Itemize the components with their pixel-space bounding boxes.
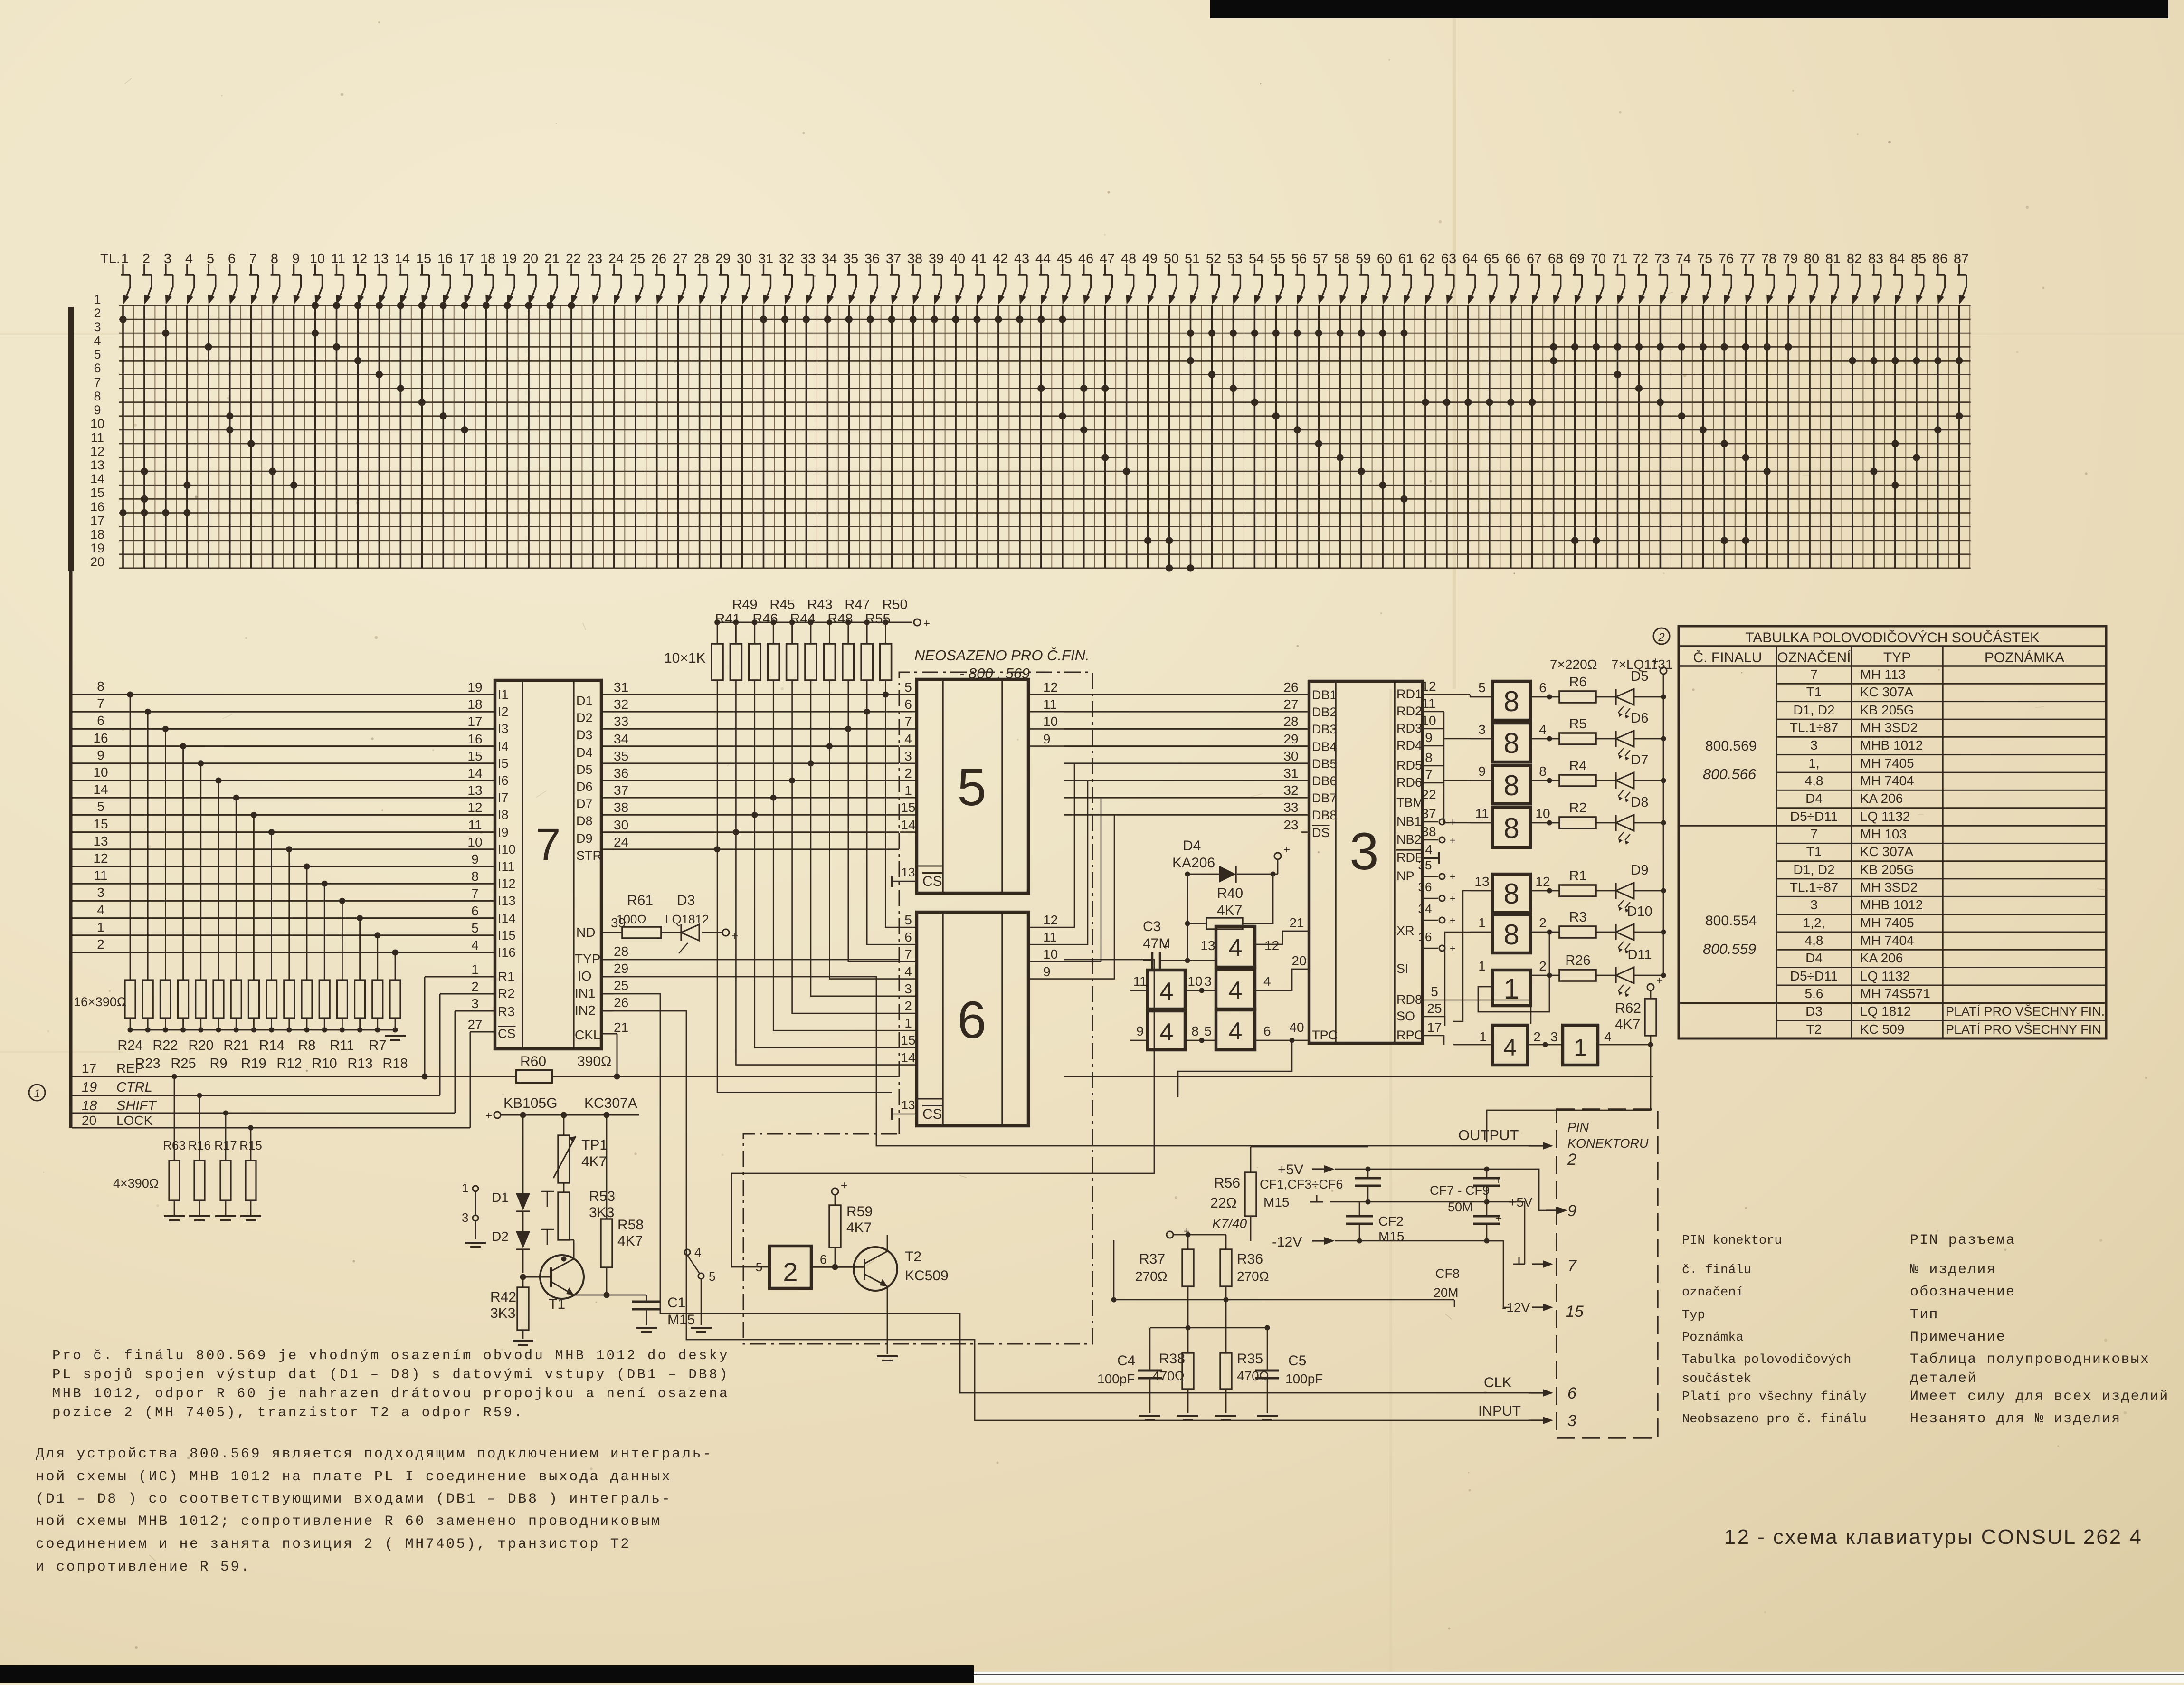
svg-text:3: 3 [94, 320, 101, 334]
svg-text:19: 19 [467, 680, 482, 695]
svg-text:24: 24 [608, 251, 624, 267]
svg-text:4: 4 [1425, 842, 1433, 857]
svg-text:31: 31 [614, 680, 628, 695]
svg-text:13: 13 [902, 865, 915, 879]
svg-text:D1: D1 [492, 1190, 509, 1205]
svg-text:9: 9 [1043, 964, 1051, 979]
svg-text:R60: R60 [520, 1054, 546, 1069]
svg-text:D5: D5 [576, 762, 593, 777]
svg-text:4: 4 [1503, 1034, 1517, 1061]
svg-text:8: 8 [1503, 727, 1519, 759]
svg-text:33: 33 [614, 714, 628, 729]
svg-text:3: 3 [1478, 722, 1486, 737]
svg-text:11: 11 [94, 868, 107, 883]
svg-text:55: 55 [1270, 251, 1285, 267]
svg-text:ной схемы МНВ 1012; сопротивле: ной схемы МНВ 1012; сопротивление R 60 з… [36, 1514, 662, 1530]
svg-text:60: 60 [1377, 251, 1392, 267]
svg-text:MH 7404: MH 7404 [1860, 773, 1914, 788]
svg-text:3: 3 [1810, 738, 1818, 752]
svg-text:R61: R61 [627, 893, 653, 908]
svg-text:R8: R8 [298, 1038, 315, 1053]
svg-text:10: 10 [1421, 713, 1436, 728]
svg-text:I3: I3 [498, 722, 509, 736]
svg-text:86: 86 [1932, 251, 1947, 267]
svg-text:D10: D10 [1627, 904, 1652, 919]
svg-text:12: 12 [1043, 913, 1058, 927]
svg-text:10: 10 [310, 251, 325, 267]
svg-text:R20: R20 [188, 1038, 213, 1053]
svg-text:36: 36 [614, 766, 628, 781]
svg-text:D9: D9 [576, 831, 593, 846]
svg-text:4: 4 [1229, 977, 1243, 1004]
svg-text:11: 11 [331, 251, 345, 267]
svg-text:10: 10 [93, 765, 108, 780]
svg-text:+: + [1495, 1174, 1502, 1187]
svg-text:18: 18 [480, 251, 495, 267]
svg-text:21: 21 [544, 251, 560, 267]
svg-text:+: + [1163, 941, 1169, 952]
svg-text:MH 7405: MH 7405 [1860, 756, 1914, 771]
svg-text:13: 13 [93, 834, 108, 848]
svg-text:NB1: NB1 [1396, 814, 1422, 828]
svg-text:CF8: CF8 [1435, 1266, 1460, 1281]
svg-text:+: + [485, 1109, 492, 1122]
svg-text:270Ω: 270Ω [1135, 1269, 1168, 1284]
svg-text:TP1: TP1 [581, 1137, 608, 1153]
svg-text:R56: R56 [1214, 1175, 1240, 1191]
svg-text:6: 6 [1263, 1024, 1271, 1038]
svg-text:11: 11 [1043, 930, 1057, 944]
svg-text:+: + [1652, 655, 1659, 668]
svg-text:14: 14 [901, 818, 915, 832]
svg-text:7: 7 [94, 375, 101, 390]
svg-text:28: 28 [694, 251, 709, 267]
svg-text:6: 6 [820, 1252, 826, 1266]
svg-text:LQ 1132: LQ 1132 [1860, 969, 1910, 983]
svg-text:R9: R9 [209, 1056, 227, 1071]
svg-text:+: + [1450, 893, 1456, 904]
svg-text:I10: I10 [498, 842, 516, 857]
svg-text:800.569: 800.569 [1705, 738, 1757, 754]
svg-text:I7: I7 [498, 790, 509, 805]
svg-text:8: 8 [1191, 1024, 1199, 1038]
svg-text:11: 11 [468, 818, 482, 832]
svg-text:2: 2 [904, 766, 912, 781]
svg-text:1: 1 [462, 1181, 468, 1195]
svg-text:34: 34 [822, 251, 837, 267]
svg-text:18: 18 [90, 527, 104, 542]
svg-text:16×390Ω: 16×390Ω [74, 995, 126, 1009]
svg-text:12: 12 [1264, 938, 1279, 953]
svg-text:16: 16 [437, 251, 453, 267]
svg-text:65: 65 [1484, 251, 1499, 267]
svg-text:100pF: 100pF [1097, 1371, 1135, 1386]
svg-text:1,: 1, [1808, 756, 1819, 771]
svg-text:7: 7 [97, 696, 104, 711]
svg-text:4K7: 4K7 [617, 1233, 643, 1249]
svg-text:I15: I15 [498, 928, 516, 942]
svg-text:67: 67 [1527, 251, 1542, 267]
svg-text:PLATÍ PRO VŠECHNY FIN: PLATÍ PRO VŠECHNY FIN [1946, 1022, 2101, 1037]
svg-text:R50: R50 [882, 597, 907, 612]
svg-text:58: 58 [1334, 251, 1349, 267]
svg-text:ND: ND [576, 925, 595, 940]
svg-text:KONEKTORU: KONEKTORU [1567, 1136, 1649, 1151]
svg-text:11: 11 [91, 430, 104, 445]
svg-text:D5÷D11: D5÷D11 [1790, 809, 1838, 824]
svg-text:2: 2 [471, 979, 479, 994]
svg-text:1: 1 [97, 920, 104, 934]
svg-text:KC307A: KC307A [584, 1095, 637, 1111]
svg-text:270Ω: 270Ω [1237, 1269, 1269, 1284]
svg-text:RD2: RD2 [1396, 704, 1422, 718]
svg-text:12: 12 [90, 444, 104, 458]
svg-text:59: 59 [1356, 251, 1371, 267]
svg-text:6: 6 [471, 904, 479, 918]
svg-text:2: 2 [1658, 631, 1664, 644]
svg-text:30: 30 [737, 251, 752, 267]
svg-text:R17: R17 [214, 1138, 237, 1152]
svg-text:I12: I12 [498, 876, 516, 891]
svg-text:C3: C3 [1143, 919, 1161, 934]
svg-text:R26: R26 [1565, 953, 1590, 968]
svg-text:LQ 1132: LQ 1132 [1860, 809, 1910, 824]
svg-text:I2: I2 [498, 704, 509, 719]
svg-text:D1: D1 [576, 694, 593, 708]
svg-text:48: 48 [1121, 251, 1136, 267]
svg-text:Č. FINALU: Č. FINALU [1693, 649, 1762, 666]
svg-text:PIN konektoru: PIN konektoru [1682, 1234, 1782, 1248]
svg-text:OZNAČENÍ: OZNAČENÍ [1777, 649, 1851, 666]
svg-text:13: 13 [373, 251, 389, 267]
svg-text:61: 61 [1398, 251, 1414, 267]
svg-text:TL.: TL. [100, 251, 120, 267]
svg-text:37: 37 [614, 783, 628, 798]
svg-text:RD4: RD4 [1396, 738, 1422, 752]
svg-text:50M: 50M [1448, 1200, 1473, 1214]
svg-text:R2: R2 [498, 986, 515, 1001]
svg-text:R19: R19 [241, 1056, 266, 1071]
svg-text:2: 2 [1567, 1151, 1576, 1169]
svg-text:50: 50 [1164, 251, 1179, 267]
svg-text:77: 77 [1740, 251, 1755, 267]
svg-text:26: 26 [1283, 680, 1298, 695]
svg-text:43: 43 [1014, 251, 1029, 267]
svg-text:PIN: PIN [1567, 1120, 1589, 1134]
svg-text:KB 205G: KB 205G [1860, 703, 1914, 717]
svg-text:R48: R48 [827, 611, 853, 627]
svg-text:6: 6 [1567, 1384, 1576, 1402]
svg-text:4K7: 4K7 [1217, 903, 1242, 918]
svg-text:8: 8 [1503, 878, 1519, 910]
svg-text:3: 3 [1204, 974, 1212, 989]
svg-text:KA 206: KA 206 [1860, 951, 1903, 965]
svg-text:36: 36 [1418, 880, 1432, 894]
svg-text:R10: R10 [312, 1056, 337, 1071]
svg-text:68: 68 [1548, 251, 1563, 267]
svg-text:D8: D8 [1631, 795, 1648, 810]
svg-text:15: 15 [416, 251, 431, 267]
svg-text:R41: R41 [715, 611, 740, 627]
svg-text:R36: R36 [1237, 1251, 1263, 1267]
svg-text:1,2,: 1,2, [1803, 915, 1825, 930]
svg-text:D3: D3 [677, 893, 695, 908]
svg-text:DB1: DB1 [1312, 688, 1337, 702]
svg-text:10: 10 [1535, 806, 1550, 821]
svg-text:D1, D2: D1, D2 [1793, 703, 1834, 717]
svg-text:I9: I9 [498, 825, 509, 839]
svg-text:M15: M15 [1263, 1195, 1289, 1209]
svg-text:11: 11 [1475, 806, 1489, 821]
svg-text:и сопротивление R 59.: и сопротивление R 59. [36, 1559, 251, 1575]
svg-text:14: 14 [901, 1050, 915, 1065]
svg-text:+: + [1450, 914, 1456, 926]
svg-text:17: 17 [1427, 1020, 1442, 1035]
svg-text:6: 6 [904, 697, 912, 712]
svg-text:9: 9 [1136, 1024, 1144, 1038]
svg-text:pozice 2 (MH 7405), tranzistor: pozice 2 (MH 7405), tranzistor T2 a odpo… [52, 1405, 524, 1420]
svg-text:RD3: RD3 [1396, 721, 1422, 735]
svg-text:M15: M15 [1378, 1229, 1404, 1244]
svg-text:10: 10 [1043, 714, 1058, 729]
svg-text:80: 80 [1804, 251, 1819, 267]
svg-text:4: 4 [1229, 1018, 1243, 1045]
svg-text:10: 10 [1043, 947, 1058, 961]
svg-text:R63: R63 [163, 1138, 186, 1152]
svg-text:RD8: RD8 [1396, 992, 1422, 1007]
svg-text:R47: R47 [845, 597, 870, 612]
svg-text:T2: T2 [905, 1249, 921, 1265]
svg-text:Примечание: Примечание [1910, 1329, 2006, 1345]
svg-text:84: 84 [1890, 251, 1905, 267]
svg-text:R11: R11 [330, 1038, 354, 1053]
svg-text:11: 11 [1422, 696, 1435, 711]
svg-text:49: 49 [1142, 251, 1158, 267]
svg-text:R14: R14 [259, 1038, 284, 1053]
svg-text:12 - схема клавиатуры CONSUL 2: 12 - схема клавиатуры CONSUL 262 4 [1724, 1525, 2143, 1549]
svg-text:30: 30 [1283, 749, 1298, 763]
svg-text:75: 75 [1697, 251, 1712, 267]
svg-text:+: + [1450, 816, 1456, 828]
svg-text:R4: R4 [1569, 758, 1586, 773]
svg-text:37: 37 [886, 251, 901, 267]
svg-text:8: 8 [94, 389, 101, 403]
svg-text:11: 11 [1133, 974, 1147, 989]
svg-text:DB3: DB3 [1312, 722, 1337, 736]
svg-text:2: 2 [1539, 915, 1547, 930]
svg-text:76: 76 [1719, 251, 1734, 267]
svg-text:R49: R49 [732, 597, 757, 612]
svg-text:22: 22 [1421, 787, 1436, 802]
svg-text:CS: CS [922, 874, 942, 889]
svg-text:SHIFT: SHIFT [116, 1098, 157, 1114]
svg-text:D4: D4 [576, 745, 593, 760]
svg-text:R45: R45 [769, 597, 795, 612]
svg-text:6: 6 [94, 361, 101, 375]
svg-text:D1, D2: D1, D2 [1793, 862, 1834, 877]
svg-text:20: 20 [90, 555, 104, 569]
svg-text:9: 9 [97, 748, 104, 762]
svg-text:4: 4 [1160, 978, 1174, 1005]
svg-text:14: 14 [90, 472, 104, 486]
svg-text:72: 72 [1633, 251, 1648, 267]
svg-text:4,8: 4,8 [1805, 933, 1823, 948]
svg-text:LQ 1812: LQ 1812 [1860, 1004, 1911, 1019]
svg-text:R40: R40 [1217, 885, 1243, 901]
svg-text:53: 53 [1227, 251, 1243, 267]
svg-text:R44: R44 [790, 611, 815, 627]
svg-text:4: 4 [1263, 974, 1271, 989]
svg-text:17: 17 [459, 251, 474, 267]
svg-text:2: 2 [904, 999, 912, 1013]
svg-text:ной схемы (ИС) МНВ 1012 на пла: ной схемы (ИС) МНВ 1012 на плате PL I со… [36, 1469, 672, 1485]
svg-text:MHB 1012: MHB 1012 [1860, 897, 1923, 912]
svg-text:7: 7 [1567, 1257, 1577, 1275]
svg-text:R6: R6 [1569, 675, 1586, 690]
svg-text:26: 26 [651, 251, 666, 267]
svg-text:5: 5 [1478, 680, 1486, 695]
svg-text:78: 78 [1761, 251, 1776, 267]
svg-text:TL.1÷87: TL.1÷87 [1790, 880, 1839, 895]
svg-text:73: 73 [1654, 251, 1670, 267]
svg-text:4: 4 [1160, 1019, 1174, 1046]
svg-text:13: 13 [90, 458, 104, 472]
svg-text:R62: R62 [1615, 1000, 1641, 1016]
svg-text:8: 8 [1503, 685, 1519, 717]
svg-text:I4: I4 [498, 739, 509, 753]
svg-text:20M: 20M [1434, 1285, 1459, 1300]
svg-text:800.559: 800.559 [1703, 941, 1756, 957]
svg-text:KC 307A: KC 307A [1860, 685, 1913, 699]
svg-text:R13: R13 [347, 1056, 372, 1071]
svg-text:1: 1 [904, 783, 912, 798]
svg-text:12: 12 [93, 851, 108, 866]
svg-text:7: 7 [536, 819, 561, 870]
svg-text:Тип: Тип [1910, 1307, 1939, 1323]
svg-text:9: 9 [471, 852, 479, 866]
svg-text:23: 23 [587, 251, 602, 267]
svg-text:15: 15 [901, 1033, 915, 1047]
svg-text:Таблица полупроводниковых: Таблица полупроводниковых [1910, 1352, 2150, 1368]
svg-text:XR: XR [1396, 923, 1415, 938]
svg-text:TYP: TYP [1883, 650, 1911, 666]
svg-text:29: 29 [715, 251, 731, 267]
svg-text:R3: R3 [498, 1004, 515, 1019]
svg-text:9: 9 [1567, 1202, 1576, 1220]
svg-text:STR: STR [576, 848, 602, 863]
svg-text:R16: R16 [188, 1138, 211, 1152]
svg-text:CLK: CLK [1484, 1375, 1511, 1390]
svg-text:R7: R7 [369, 1038, 386, 1053]
svg-text:45: 45 [1057, 251, 1072, 267]
svg-text:9: 9 [1478, 764, 1486, 779]
svg-text:I14: I14 [498, 911, 516, 925]
svg-text:D11: D11 [1627, 947, 1652, 962]
svg-text:4: 4 [1604, 1029, 1612, 1044]
svg-text:16: 16 [93, 731, 108, 745]
svg-text:2: 2 [94, 306, 101, 320]
svg-text:17: 17 [82, 1061, 96, 1076]
svg-text:1: 1 [1574, 1034, 1587, 1061]
svg-text:12: 12 [1421, 679, 1436, 694]
svg-text:R38: R38 [1159, 1351, 1185, 1367]
svg-text:7: 7 [904, 714, 912, 729]
svg-text:25: 25 [1427, 1001, 1442, 1016]
svg-text:52: 52 [1206, 251, 1221, 267]
svg-text:7: 7 [1425, 767, 1433, 782]
svg-text:28: 28 [1283, 714, 1298, 729]
svg-text:Poznámka: Poznámka [1682, 1331, 1744, 1345]
svg-text:D4: D4 [1183, 838, 1201, 854]
svg-text:KA 206: KA 206 [1860, 791, 1903, 806]
svg-text:C4: C4 [1117, 1353, 1135, 1369]
svg-text:Имеет силу для всех изделий: Имеет силу для всех изделий [1910, 1389, 2169, 1405]
svg-text:3: 3 [97, 885, 104, 900]
svg-text:+: + [1450, 871, 1456, 883]
svg-text:SI: SI [1396, 961, 1409, 976]
svg-text:13: 13 [1200, 938, 1215, 953]
svg-text:3K3: 3K3 [589, 1205, 614, 1220]
svg-text:27: 27 [673, 251, 688, 267]
svg-text:4: 4 [471, 938, 479, 952]
svg-text:C1: C1 [667, 1295, 685, 1311]
svg-text:8: 8 [1503, 812, 1519, 844]
svg-text:62: 62 [1420, 251, 1435, 267]
svg-text:R35: R35 [1237, 1351, 1263, 1367]
svg-text:I8: I8 [498, 808, 509, 822]
svg-text:R42: R42 [490, 1289, 516, 1305]
svg-text:2: 2 [97, 937, 104, 952]
svg-text:4: 4 [94, 333, 101, 348]
svg-text:R58: R58 [617, 1217, 644, 1233]
svg-text:3: 3 [1550, 1029, 1558, 1044]
svg-text:20: 20 [523, 251, 538, 267]
svg-text:56: 56 [1291, 251, 1307, 267]
svg-text:DB7: DB7 [1312, 791, 1337, 805]
svg-text:C5: C5 [1288, 1353, 1306, 1369]
svg-text:D3: D3 [576, 728, 593, 742]
svg-text:51: 51 [1185, 251, 1200, 267]
svg-text:15: 15 [90, 486, 104, 500]
svg-text:10: 10 [90, 417, 104, 431]
svg-text:38: 38 [907, 251, 922, 267]
svg-text:3: 3 [904, 981, 912, 996]
svg-text:27: 27 [1283, 697, 1298, 712]
svg-text:6: 6 [97, 713, 104, 728]
svg-text:10: 10 [467, 835, 482, 849]
svg-text:100Ω: 100Ω [617, 912, 646, 926]
svg-text:25: 25 [630, 251, 645, 267]
svg-text:3: 3 [1567, 1412, 1576, 1430]
svg-text:13: 13 [902, 1098, 915, 1112]
svg-text:8: 8 [1425, 750, 1433, 765]
svg-text:19: 19 [90, 541, 104, 555]
svg-text:26: 26 [614, 995, 628, 1010]
svg-text:TYP: TYP [575, 952, 600, 966]
svg-text:14: 14 [467, 766, 482, 781]
svg-text:5: 5 [756, 1260, 762, 1274]
svg-text:35: 35 [843, 251, 858, 267]
svg-text:8: 8 [1503, 770, 1519, 801]
svg-text:15: 15 [93, 817, 108, 831]
svg-text:41: 41 [971, 251, 987, 267]
svg-text:17: 17 [90, 514, 104, 528]
svg-text:MH 7404: MH 7404 [1860, 933, 1914, 948]
svg-text:16: 16 [1418, 930, 1432, 944]
svg-text:SO: SO [1396, 1009, 1415, 1023]
svg-text:NP: NP [1396, 869, 1415, 883]
svg-text:38: 38 [1421, 824, 1436, 839]
